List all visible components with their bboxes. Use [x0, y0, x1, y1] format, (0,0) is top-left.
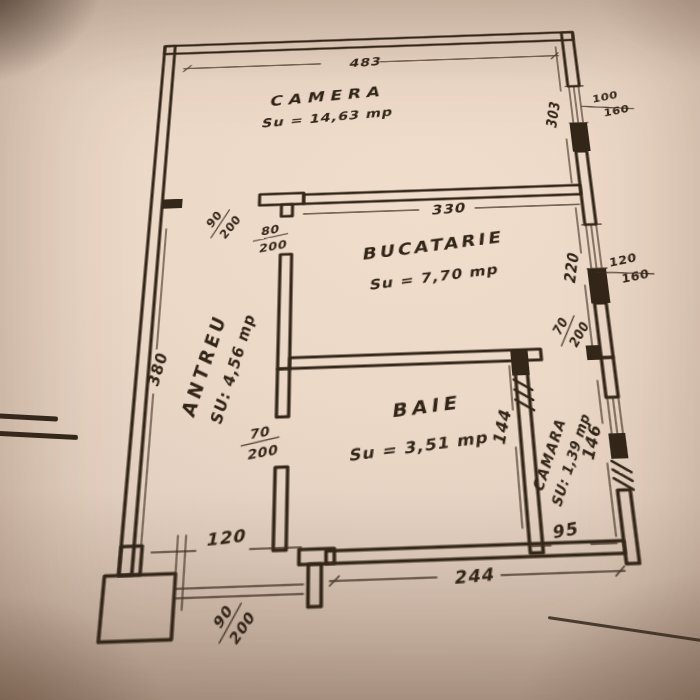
floor-plan-drawing: CAMERA Su = 14,63 mp BUCATARIE Su = 7,70… — [71, 25, 700, 694]
dim-kitchen-width: 330 — [430, 200, 467, 217]
wall-bottom-baie — [326, 541, 625, 564]
wall-right-pier-1 — [569, 123, 590, 152]
vent-camara — [607, 397, 623, 433]
window-label-camera: 100 160 — [589, 88, 632, 120]
window-kitchen-width: 120 — [606, 251, 640, 270]
room-label-bucatarie: BUCATARIE Su = 7,70 mp — [360, 227, 510, 293]
door-label-camera: 90 200 — [196, 204, 245, 246]
wall-left — [119, 46, 176, 576]
dim-baie-width: 244 — [452, 564, 495, 588]
room-area-camera: Su = 14,63 mp — [260, 105, 392, 130]
wall-camara-doorpier — [586, 345, 602, 360]
room-label-camera: CAMERA Su = 14,63 mp — [259, 82, 392, 130]
window-camera — [565, 86, 588, 123]
hatch-camara-wall — [612, 460, 634, 490]
wall-chimney-block — [98, 574, 175, 643]
dim-camera-width: 483 — [348, 55, 381, 70]
wall-antreu-stem — [281, 204, 292, 216]
dim-baie-depth: 144 — [489, 408, 515, 447]
room-name-camera: CAMERA — [268, 83, 385, 109]
window-kitchen — [582, 224, 607, 269]
window-kitchen-height: 160 — [618, 267, 652, 286]
door-label-entry: 90 200 — [202, 594, 261, 653]
photographed-paper: CAMERA Su = 14,63 mp BUCATARIE Su = 7,70… — [0, 0, 700, 700]
dim-camara-width: 95 — [549, 518, 580, 542]
dim-camera-depth: 303 — [542, 101, 562, 130]
window-camera-height: 160 — [600, 103, 631, 119]
room-area-baie: Su = 3,51 mp — [347, 428, 489, 465]
wall-top — [164, 32, 573, 54]
door-label-kitchen: 80 200 — [251, 221, 290, 256]
window-camera-width: 100 — [589, 89, 620, 105]
wall-bottom-tpier-stem — [308, 564, 321, 607]
room-name-bucatarie: BUCATARIE — [360, 227, 504, 263]
wall-right-pier-3 — [608, 433, 628, 459]
window-label-kitchen: 120 160 — [606, 249, 652, 287]
wall-divider-camera — [304, 185, 581, 204]
wall-right-seg-3 — [601, 357, 618, 397]
wall-antreu-baie-low — [273, 467, 287, 551]
door-label-baie: 70 200 — [239, 422, 282, 464]
wall-divider-block — [162, 199, 183, 209]
wall-right-pier-2 — [587, 268, 610, 303]
wall-antreu-baie-up — [276, 369, 289, 418]
room-name-baie: BAIE — [389, 391, 461, 422]
room-label-baie: BAIE Su = 3,51 mp — [342, 388, 489, 464]
door-baie-height: 200 — [245, 442, 280, 463]
room-label-antreu: ANTREU SU: 4,56 mp — [175, 308, 259, 426]
dimension-labels: 483 303 330 220 380 144 244 120 95 146 — [125, 49, 624, 600]
dim-kitchen-depth: 220 — [560, 252, 582, 285]
wall-antreu-kitchen — [278, 254, 292, 369]
equals-mark-bottom-line — [0, 431, 78, 440]
room-area-bucatarie: Su = 7,70 mp — [367, 261, 499, 293]
wall-kitchen-baie — [290, 349, 542, 368]
door-kitchen-height: 200 — [257, 238, 289, 256]
equals-mark-top-line — [0, 413, 58, 421]
dim-antreu-width: 120 — [205, 526, 246, 550]
floor-plan-sheet: CAMERA Su = 14,63 mp BUCATARIE Su = 7,70… — [71, 25, 700, 694]
dim-antreu-depth: 380 — [143, 352, 171, 388]
